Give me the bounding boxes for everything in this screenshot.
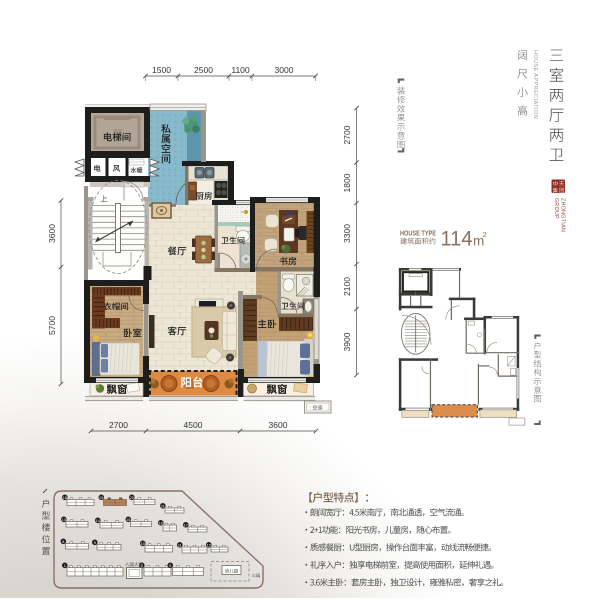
svg-text:3600: 3600: [47, 224, 57, 243]
svg-text:17: 17: [184, 523, 188, 527]
svg-text:3000: 3000: [275, 65, 294, 75]
svg-text:4500: 4500: [184, 420, 203, 430]
svg-text:3600: 3600: [269, 420, 288, 430]
svg-text:19: 19: [99, 496, 103, 500]
svg-text:20: 20: [130, 496, 134, 500]
svg-text:HOUSE APPRECIATION: HOUSE APPRECIATION: [532, 50, 538, 119]
svg-text:2: 2: [483, 230, 487, 239]
svg-text:1: 1: [64, 564, 66, 568]
svg-text:21: 21: [161, 504, 165, 508]
svg-text:10: 10: [141, 542, 145, 546]
svg-text:HOUSE TYPE: HOUSE TYPE: [400, 231, 436, 238]
svg-text:ZHONGTIAN: ZHONGTIAN: [560, 198, 566, 232]
svg-text:1800: 1800: [342, 173, 352, 192]
svg-text:1100: 1100: [231, 65, 250, 75]
svg-text:2700: 2700: [342, 125, 352, 144]
svg-text:2100: 2100: [342, 277, 352, 296]
svg-text:6: 6: [169, 564, 171, 568]
svg-text:18: 18: [63, 496, 67, 500]
svg-text:114: 114: [441, 227, 473, 251]
svg-text:2500: 2500: [194, 65, 213, 75]
svg-text:12: 12: [207, 543, 211, 547]
svg-text:15: 15: [126, 518, 130, 522]
svg-text:3300: 3300: [342, 224, 352, 243]
svg-text:5700: 5700: [47, 316, 57, 335]
svg-text:GROUP: GROUP: [553, 198, 559, 219]
svg-text:1500: 1500: [152, 65, 171, 75]
svg-text:16: 16: [159, 521, 163, 525]
svg-text:14: 14: [96, 519, 100, 523]
svg-text:9: 9: [94, 541, 96, 545]
svg-text:8: 8: [62, 540, 64, 544]
svg-text:3900: 3900: [342, 332, 352, 351]
svg-text:2700: 2700: [109, 420, 128, 430]
svg-text:11: 11: [178, 543, 182, 547]
svg-text:13: 13: [62, 518, 66, 522]
